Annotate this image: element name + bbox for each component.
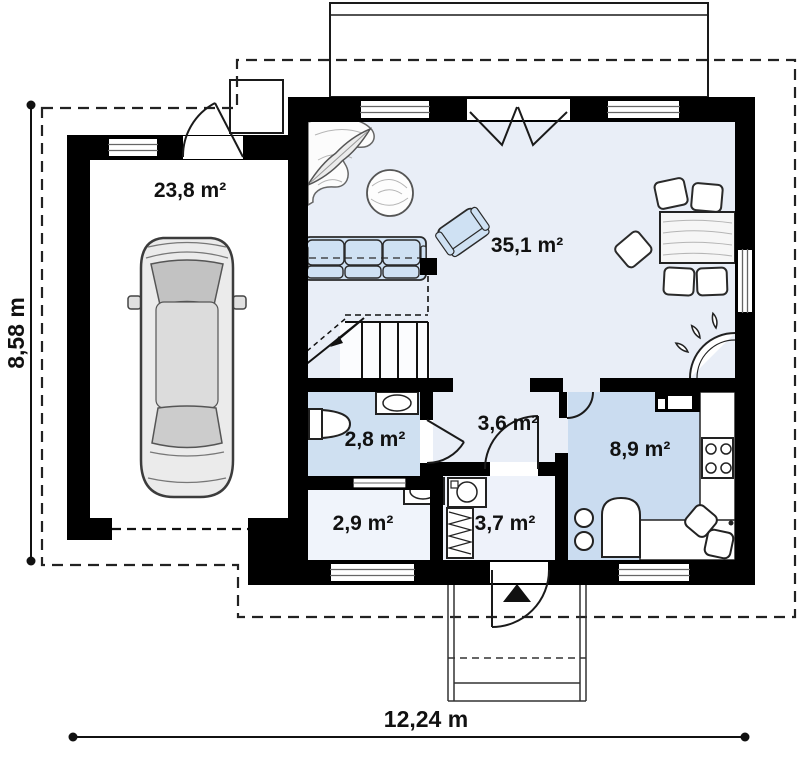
dining-chair-icon [697, 267, 728, 295]
column [420, 258, 437, 275]
stool-icon [575, 509, 593, 527]
car-mirror [233, 296, 246, 309]
entry-area-label: 3,7 m² [475, 512, 536, 535]
car-mirror [128, 296, 141, 309]
window [618, 563, 690, 582]
kitchen-area-label: 8,9 m² [610, 438, 671, 461]
garage-area-label: 23,8 m² [154, 179, 226, 202]
window [737, 249, 753, 313]
height-dimension-label: 8,58 m [3, 297, 29, 369]
car-rear-window [152, 406, 222, 448]
car-icon [128, 238, 246, 497]
dining-chair-icon [654, 177, 689, 210]
car-windshield [151, 260, 223, 305]
sofa-icon [303, 237, 426, 280]
bathroom-area-label: 2,8 m² [345, 428, 406, 451]
car-roof [156, 302, 218, 408]
living-area-label: 35,1 m² [491, 234, 563, 257]
canopy-pillar [230, 80, 283, 133]
window [108, 138, 158, 157]
window [607, 100, 680, 119]
dimension-width [69, 733, 750, 742]
window [360, 100, 430, 119]
floor-plan: 23,8 m² 35,1 m² 2,8 m² 3,6 m² 8,9 m² 2,9… [0, 0, 800, 759]
fridge-icon [602, 498, 640, 557]
rug-icon [367, 170, 413, 216]
dining-chair-icon [663, 267, 694, 296]
entrance-arrow-icon [503, 584, 531, 602]
dining-chair-icon [691, 183, 723, 213]
storage-area-label: 2,9 m² [333, 512, 394, 535]
width-dimension-label: 12,24 m [384, 706, 468, 732]
hallway-area-label: 3,6 m² [478, 412, 539, 435]
interior-window [353, 478, 406, 488]
porch-steps [448, 585, 586, 701]
floor-plan-drawing: 23,8 m² 35,1 m² 2,8 m² 3,6 m² 8,9 m² 2,9… [0, 0, 800, 759]
kitchen-chair-icon [704, 529, 735, 560]
toilet-icon [309, 409, 322, 439]
window [330, 563, 415, 582]
stool-icon [575, 532, 593, 550]
